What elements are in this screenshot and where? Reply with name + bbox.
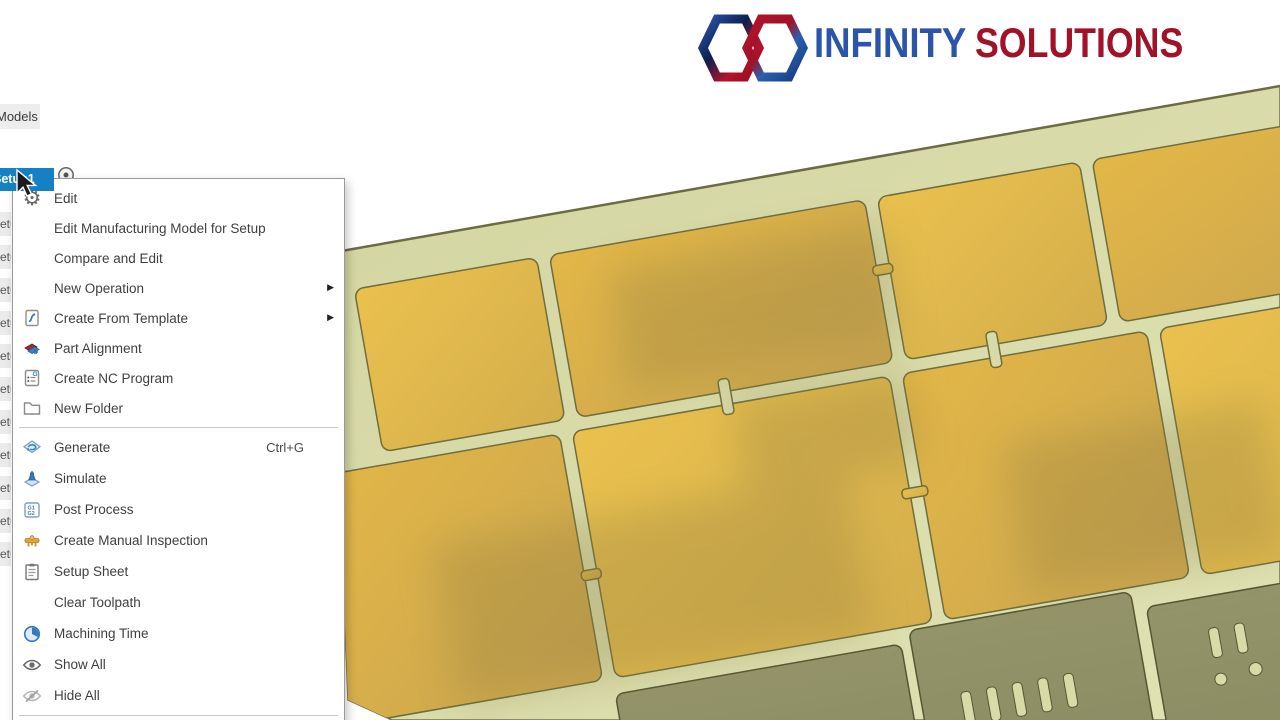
brand-name-primary: INFINITY	[814, 22, 966, 64]
browser-item-partial[interactable]: Setup	[0, 476, 11, 500]
browser-item-partial[interactable]: Setup	[0, 344, 11, 368]
browser-item-partial[interactable]: Setup	[0, 245, 11, 269]
shortcut-label: Ctrl+G	[266, 440, 304, 455]
menu-item-create-from-template[interactable]: Create From Template ▶	[13, 303, 344, 333]
menu-separator	[19, 427, 338, 428]
brand-logo: INFINITY SOLUTIONS	[690, 4, 1280, 82]
menu-item-new-operation[interactable]: New Operation ▶	[13, 273, 344, 303]
brand-name-secondary: SOLUTIONS	[975, 22, 1183, 64]
browser-item-partial[interactable]: Setup	[0, 278, 11, 302]
app-window: INFINITY SOLUTIONS Models Setup Setup Se…	[0, 0, 1280, 720]
browser-item-partial[interactable]: Setup	[0, 311, 11, 335]
context-menu: ⚙ Edit Edit Manufacturing Model for Setu…	[12, 178, 345, 720]
browser-item-partial[interactable]: Setup	[0, 377, 11, 401]
setup-sheet-icon	[19, 562, 45, 582]
eye-off-icon	[19, 686, 45, 706]
svg-text:G2: G2	[28, 511, 35, 517]
folder-icon	[19, 398, 45, 418]
mouse-cursor	[14, 168, 42, 200]
menu-item-simulate[interactable]: Simulate	[13, 463, 344, 494]
clock-icon	[19, 624, 45, 644]
nc-program-icon: G	[19, 368, 45, 388]
generate-icon	[19, 438, 45, 458]
submenu-arrow-icon: ▶	[327, 313, 334, 323]
browser-item-partial[interactable]: Setup	[0, 410, 11, 434]
template-icon	[19, 308, 45, 328]
menu-item-clear-toolpath[interactable]: Clear Toolpath	[13, 587, 344, 618]
menu-item-edit[interactable]: ⚙ Edit	[13, 183, 344, 213]
browser-item-partial[interactable]: Setup	[0, 212, 11, 236]
menu-item-show-all[interactable]: Show All	[13, 649, 344, 680]
menu-item-hide-all[interactable]: Hide All	[13, 680, 344, 711]
menu-item-post-process[interactable]: G1 G2 Post Process	[13, 494, 344, 525]
menu-item-setup-sheet[interactable]: Setup Sheet	[13, 556, 344, 587]
eye-icon	[19, 655, 45, 675]
menu-item-create-manual-inspection[interactable]: Create Manual Inspection	[13, 525, 344, 556]
menu-item-generate[interactable]: Generate Ctrl+G	[13, 432, 344, 463]
menu-item-new-folder[interactable]: New Folder	[13, 393, 344, 423]
part-alignment-icon	[19, 338, 45, 358]
submenu-arrow-icon: ▶	[327, 283, 334, 293]
menu-item-machining-time[interactable]: Machining Time	[13, 618, 344, 649]
menu-item-edit-manufacturing-model[interactable]: Edit Manufacturing Model for Setup	[13, 213, 344, 243]
browser-item-partial[interactable]: Setup	[0, 443, 11, 467]
simulate-icon	[19, 469, 45, 489]
browser-label-models[interactable]: Models	[0, 104, 40, 129]
menu-item-part-alignment[interactable]: Part Alignment	[13, 333, 344, 363]
inspection-icon	[19, 531, 45, 551]
menu-separator	[19, 715, 338, 716]
post-process-icon: G1 G2	[19, 500, 45, 520]
menu-item-create-nc-program[interactable]: G Create NC Program	[13, 363, 344, 393]
browser-item-partial[interactable]: Setup	[0, 542, 11, 566]
menu-item-compare-and-edit[interactable]: Compare and Edit	[13, 243, 344, 273]
infinity-logo-icon	[698, 8, 810, 88]
browser-item-partial[interactable]: Setup	[0, 509, 11, 533]
